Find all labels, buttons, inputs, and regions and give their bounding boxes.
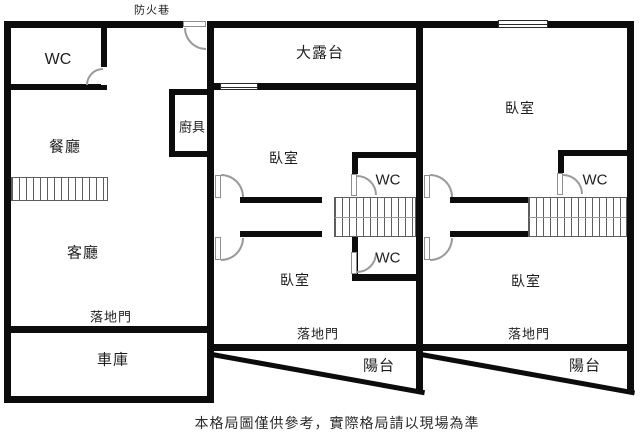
corridor-door-lower-arc-icon <box>221 238 244 261</box>
floor-plan-canvas: 防火巷 WC 餐廳 廚具 客廳 落地門 車庫 大露台 臥室 WC <box>0 0 640 438</box>
wc-upper-middle-door-arc-icon <box>357 175 377 195</box>
entry-door-leaf <box>183 21 206 27</box>
terrace-label: 大露台 <box>296 46 344 61</box>
corridor-door-lower-right-arc-icon <box>430 238 453 261</box>
bedroom-upper-right-label: 臥室 <box>505 101 535 115</box>
balcony-edge-right <box>421 352 635 395</box>
bedroom-lower-middle-label: 臥室 <box>280 273 310 287</box>
bedroom-upper-middle-label: 臥室 <box>269 151 299 165</box>
garage-ceiling-wall <box>4 326 214 333</box>
wc-upper-middle-label: WC <box>376 173 401 188</box>
stairs-right-unit <box>528 197 627 237</box>
terrace-window-icon <box>220 83 258 90</box>
balcony-label-middle: 陽台 <box>363 359 395 374</box>
balcony-label-right: 陽台 <box>569 359 601 374</box>
wc-right-label: WC <box>583 173 608 188</box>
wc-lower-middle-door-arc-icon <box>357 253 377 273</box>
wc-upper-middle-left-wall <box>352 152 358 174</box>
wc-label: WC <box>45 52 72 68</box>
disclaimer-text: 本格局圖僅供參考，實際格局請以現場為準 <box>195 416 480 430</box>
wall-right <box>627 21 634 392</box>
kitchen-left-wall <box>169 89 175 157</box>
wall-bottom-left-unit <box>4 396 214 403</box>
garage-label: 車庫 <box>97 353 129 368</box>
wc-door-arc-icon <box>86 68 103 85</box>
corridor-door-upper-arc-icon <box>221 174 244 197</box>
divider-wall-2 <box>416 21 423 392</box>
stairwell-top-bar <box>240 197 322 203</box>
dining-label: 餐廳 <box>49 140 81 155</box>
patio-door-label-right: 落地門 <box>508 328 550 341</box>
patio-door-label-middle: 落地門 <box>297 328 339 341</box>
balcony-wall-middle <box>207 344 423 351</box>
wc-right-top-wall <box>558 150 634 156</box>
alley-label: 防火巷 <box>134 6 170 17</box>
entry-door-arc-icon <box>184 28 206 50</box>
wc-lower-middle-bottom-wall <box>352 274 423 281</box>
stairwell-top-bar-right <box>450 197 528 203</box>
patio-door-label-left: 落地門 <box>90 311 132 324</box>
stairwell-bottom-bar-right <box>450 231 528 237</box>
stairs-middle-unit <box>334 197 416 237</box>
wc-lower-middle-label: WC <box>376 251 401 266</box>
stairwell-bottom-bar <box>240 231 322 237</box>
wall-left <box>4 21 11 403</box>
top-window-icon <box>498 20 548 28</box>
bedroom-lower-right-label: 臥室 <box>511 274 541 288</box>
living-label: 客廳 <box>67 246 99 261</box>
stairs-left-unit <box>11 177 108 201</box>
wc-right-left-wall <box>558 150 564 173</box>
wc-upper-middle-top-wall <box>352 152 423 158</box>
corridor-door-upper-right-arc-icon <box>430 174 453 197</box>
kitchen-label: 廚具 <box>179 121 205 134</box>
kitchen-bottom-wall <box>169 151 214 157</box>
balcony-wall-right <box>416 344 634 351</box>
kitchen-top-wall <box>169 89 214 95</box>
wc-right-door-arc-icon <box>563 174 583 194</box>
